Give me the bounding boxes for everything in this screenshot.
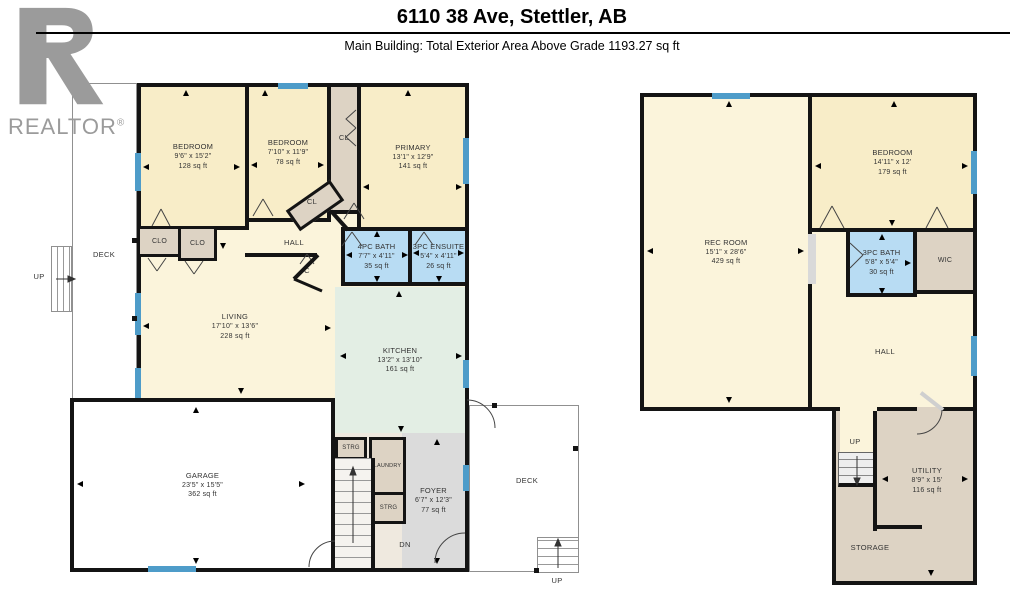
room-kitchen: KITCHEN13'2" x 13'10"161 sq ft	[335, 287, 469, 437]
dimension-arrow	[879, 288, 885, 294]
dimension-arrow	[251, 162, 257, 168]
dimension-arrow	[262, 90, 268, 96]
foyer-label: FOYER6'7" x 12'3"77 sq ft	[415, 486, 452, 515]
dimension-arrow	[798, 248, 804, 254]
dimension-arrow	[325, 325, 331, 331]
dimension-arrow	[143, 323, 149, 329]
room-basement-bedroom: BEDROOM14'11" x 12'179 sq ft	[808, 93, 977, 232]
strg1-label: STRG	[342, 444, 359, 452]
deck-right-stairs	[537, 537, 579, 573]
realtor-logo-label: REALTOR®	[8, 114, 125, 140]
dimension-arrow	[962, 163, 968, 169]
rec-hall-opening	[808, 234, 816, 284]
room-recroom: REC ROOM15'1" x 28'6"429 sq ft	[640, 93, 812, 411]
window	[148, 566, 196, 572]
window	[135, 153, 141, 191]
dimension-arrow	[374, 276, 380, 282]
wall-piece	[877, 407, 917, 411]
dimension-arrow	[413, 250, 419, 256]
realtor-logo-icon: REALTOR®	[6, 4, 110, 115]
window	[971, 151, 977, 194]
dimension-arrow	[234, 164, 240, 170]
clo2-label: CLO	[190, 239, 205, 248]
hall-label: HALL	[270, 239, 318, 247]
dimension-arrow	[402, 252, 408, 258]
living-label: LIVING17'10" x 13'6"228 sq ft	[180, 312, 290, 341]
dimension-arrow	[647, 248, 653, 254]
dimension-arrow	[238, 388, 244, 394]
utility-wall-vertical	[873, 411, 877, 531]
bath-4pc-label: 4PC BATH7'7" x 4'11"35 sq ft	[358, 242, 396, 271]
room-garage: GARAGE23'5" x 15'5"362 sq ft	[70, 398, 335, 572]
dimension-arrow	[193, 558, 199, 564]
room-wic: WIC	[913, 228, 977, 294]
primary-label: PRIMARY13'1" x 12'9"141 sq ft	[393, 143, 434, 172]
storage-label: STORAGE	[838, 544, 902, 552]
room-clo1: CLO	[137, 226, 182, 257]
dimension-arrow	[458, 250, 464, 256]
dimension-arrow	[363, 184, 369, 190]
deck-right-up-label: UP	[545, 577, 569, 585]
hall-living-wall	[245, 253, 317, 257]
basement-hall-label: HALL	[855, 348, 915, 356]
window	[135, 293, 141, 335]
interior-stairs-down	[335, 458, 375, 568]
utility-label: UTILITY8'9" x 15'116 sq ft	[895, 466, 959, 495]
dimension-arrow	[726, 397, 732, 403]
floorplan-page: 6110 38 Ave, Stettler, AB Main Building:…	[0, 0, 1024, 607]
dimension-arrow	[456, 353, 462, 359]
window	[278, 83, 308, 89]
dn-label: DN	[393, 541, 417, 549]
ensuite-label: 3PC ENSUITE5'4" x 4'11"26 sq ft	[413, 242, 464, 271]
c-closet-label: C	[296, 267, 318, 275]
window	[135, 368, 141, 398]
dimension-arrow	[220, 243, 226, 249]
basement-up-label: UP	[843, 438, 867, 446]
room-strg1: STRG	[335, 437, 367, 460]
kitchen-label: KITCHEN13'2" x 13'10"161 sq ft	[377, 346, 422, 375]
dimension-arrow	[434, 558, 440, 564]
dimension-arrow	[882, 476, 888, 482]
garage-label: GARAGE23'5" x 15'5"362 sq ft	[182, 471, 223, 500]
room-clo2: CLO	[178, 226, 217, 261]
dimension-arrow	[318, 162, 324, 168]
dimension-arrow	[346, 252, 352, 258]
window	[971, 336, 977, 376]
laundry-label: LAUNDRY	[374, 463, 402, 470]
dimension-arrow	[891, 101, 897, 107]
dimension-arrow	[879, 234, 885, 240]
dimension-arrow	[299, 481, 305, 487]
clo1-label: CLO	[152, 237, 167, 246]
dimension-arrow	[374, 231, 380, 237]
dimension-arrow	[905, 260, 911, 266]
room-primary: PRIMARY13'1" x 12'9"141 sq ft	[357, 83, 469, 231]
basement-bath-label: 3PC BATH5'8" x 5'4"30 sq ft	[863, 248, 901, 277]
recroom-label: REC ROOM15'1" x 28'6"429 sq ft	[705, 238, 748, 267]
deck-left-up-label: UP	[28, 273, 50, 281]
deck-left-stairs	[51, 246, 72, 312]
room-foyer: FOYER6'7" x 12'3"77 sq ft	[402, 433, 469, 572]
strg2-label: STRG	[380, 504, 397, 512]
bedroom1-label: BEDROOM9'6" x 15'2"128 sq ft	[173, 142, 213, 171]
basement-stairs-up	[838, 452, 877, 487]
closet-strip-label: CL	[330, 134, 358, 142]
window	[463, 465, 469, 491]
realtor-r-icon	[6, 4, 110, 110]
dimension-arrow	[193, 407, 199, 413]
header-divider	[36, 32, 1010, 34]
dimension-arrow	[77, 481, 83, 487]
dimension-arrow	[405, 90, 411, 96]
utility-wall-horizontal	[873, 525, 922, 529]
dimension-arrow	[396, 291, 402, 297]
room-bedroom1: BEDROOM9'6" x 15'2"128 sq ft	[137, 83, 249, 230]
page-title: 6110 38 Ave, Stettler, AB	[0, 6, 1024, 29]
dimension-arrow	[340, 353, 346, 359]
basement-bedroom-label: BEDROOM14'11" x 12'179 sq ft	[872, 148, 912, 177]
dimension-arrow	[436, 276, 442, 282]
dimension-arrow	[398, 426, 404, 432]
dimension-arrow	[889, 220, 895, 226]
dimension-arrow	[928, 570, 934, 576]
deck-right-label: DECK	[497, 477, 557, 485]
living-bottom-wall	[137, 398, 335, 402]
wic-label: WIC	[938, 256, 952, 265]
wall-piece	[942, 407, 977, 411]
basement-stair-landing	[840, 407, 877, 455]
page-subtitle: Main Building: Total Exterior Area Above…	[0, 39, 1024, 53]
dimension-arrow	[143, 164, 149, 170]
deck-left-label: DECK	[74, 251, 134, 259]
window	[712, 93, 750, 99]
window	[463, 360, 469, 388]
angled-closet-label: CL	[299, 198, 325, 206]
dimension-arrow	[962, 476, 968, 482]
dimension-arrow	[726, 101, 732, 107]
dimension-arrow	[183, 90, 189, 96]
wall-piece	[808, 407, 836, 411]
bedroom2-label: BEDROOM7'10" x 11'9"78 sq ft	[268, 138, 308, 167]
dimension-arrow	[815, 163, 821, 169]
room-strg2: STRG	[371, 492, 406, 524]
dimension-arrow	[456, 184, 462, 190]
dimension-arrow	[434, 439, 440, 445]
window	[463, 138, 469, 184]
